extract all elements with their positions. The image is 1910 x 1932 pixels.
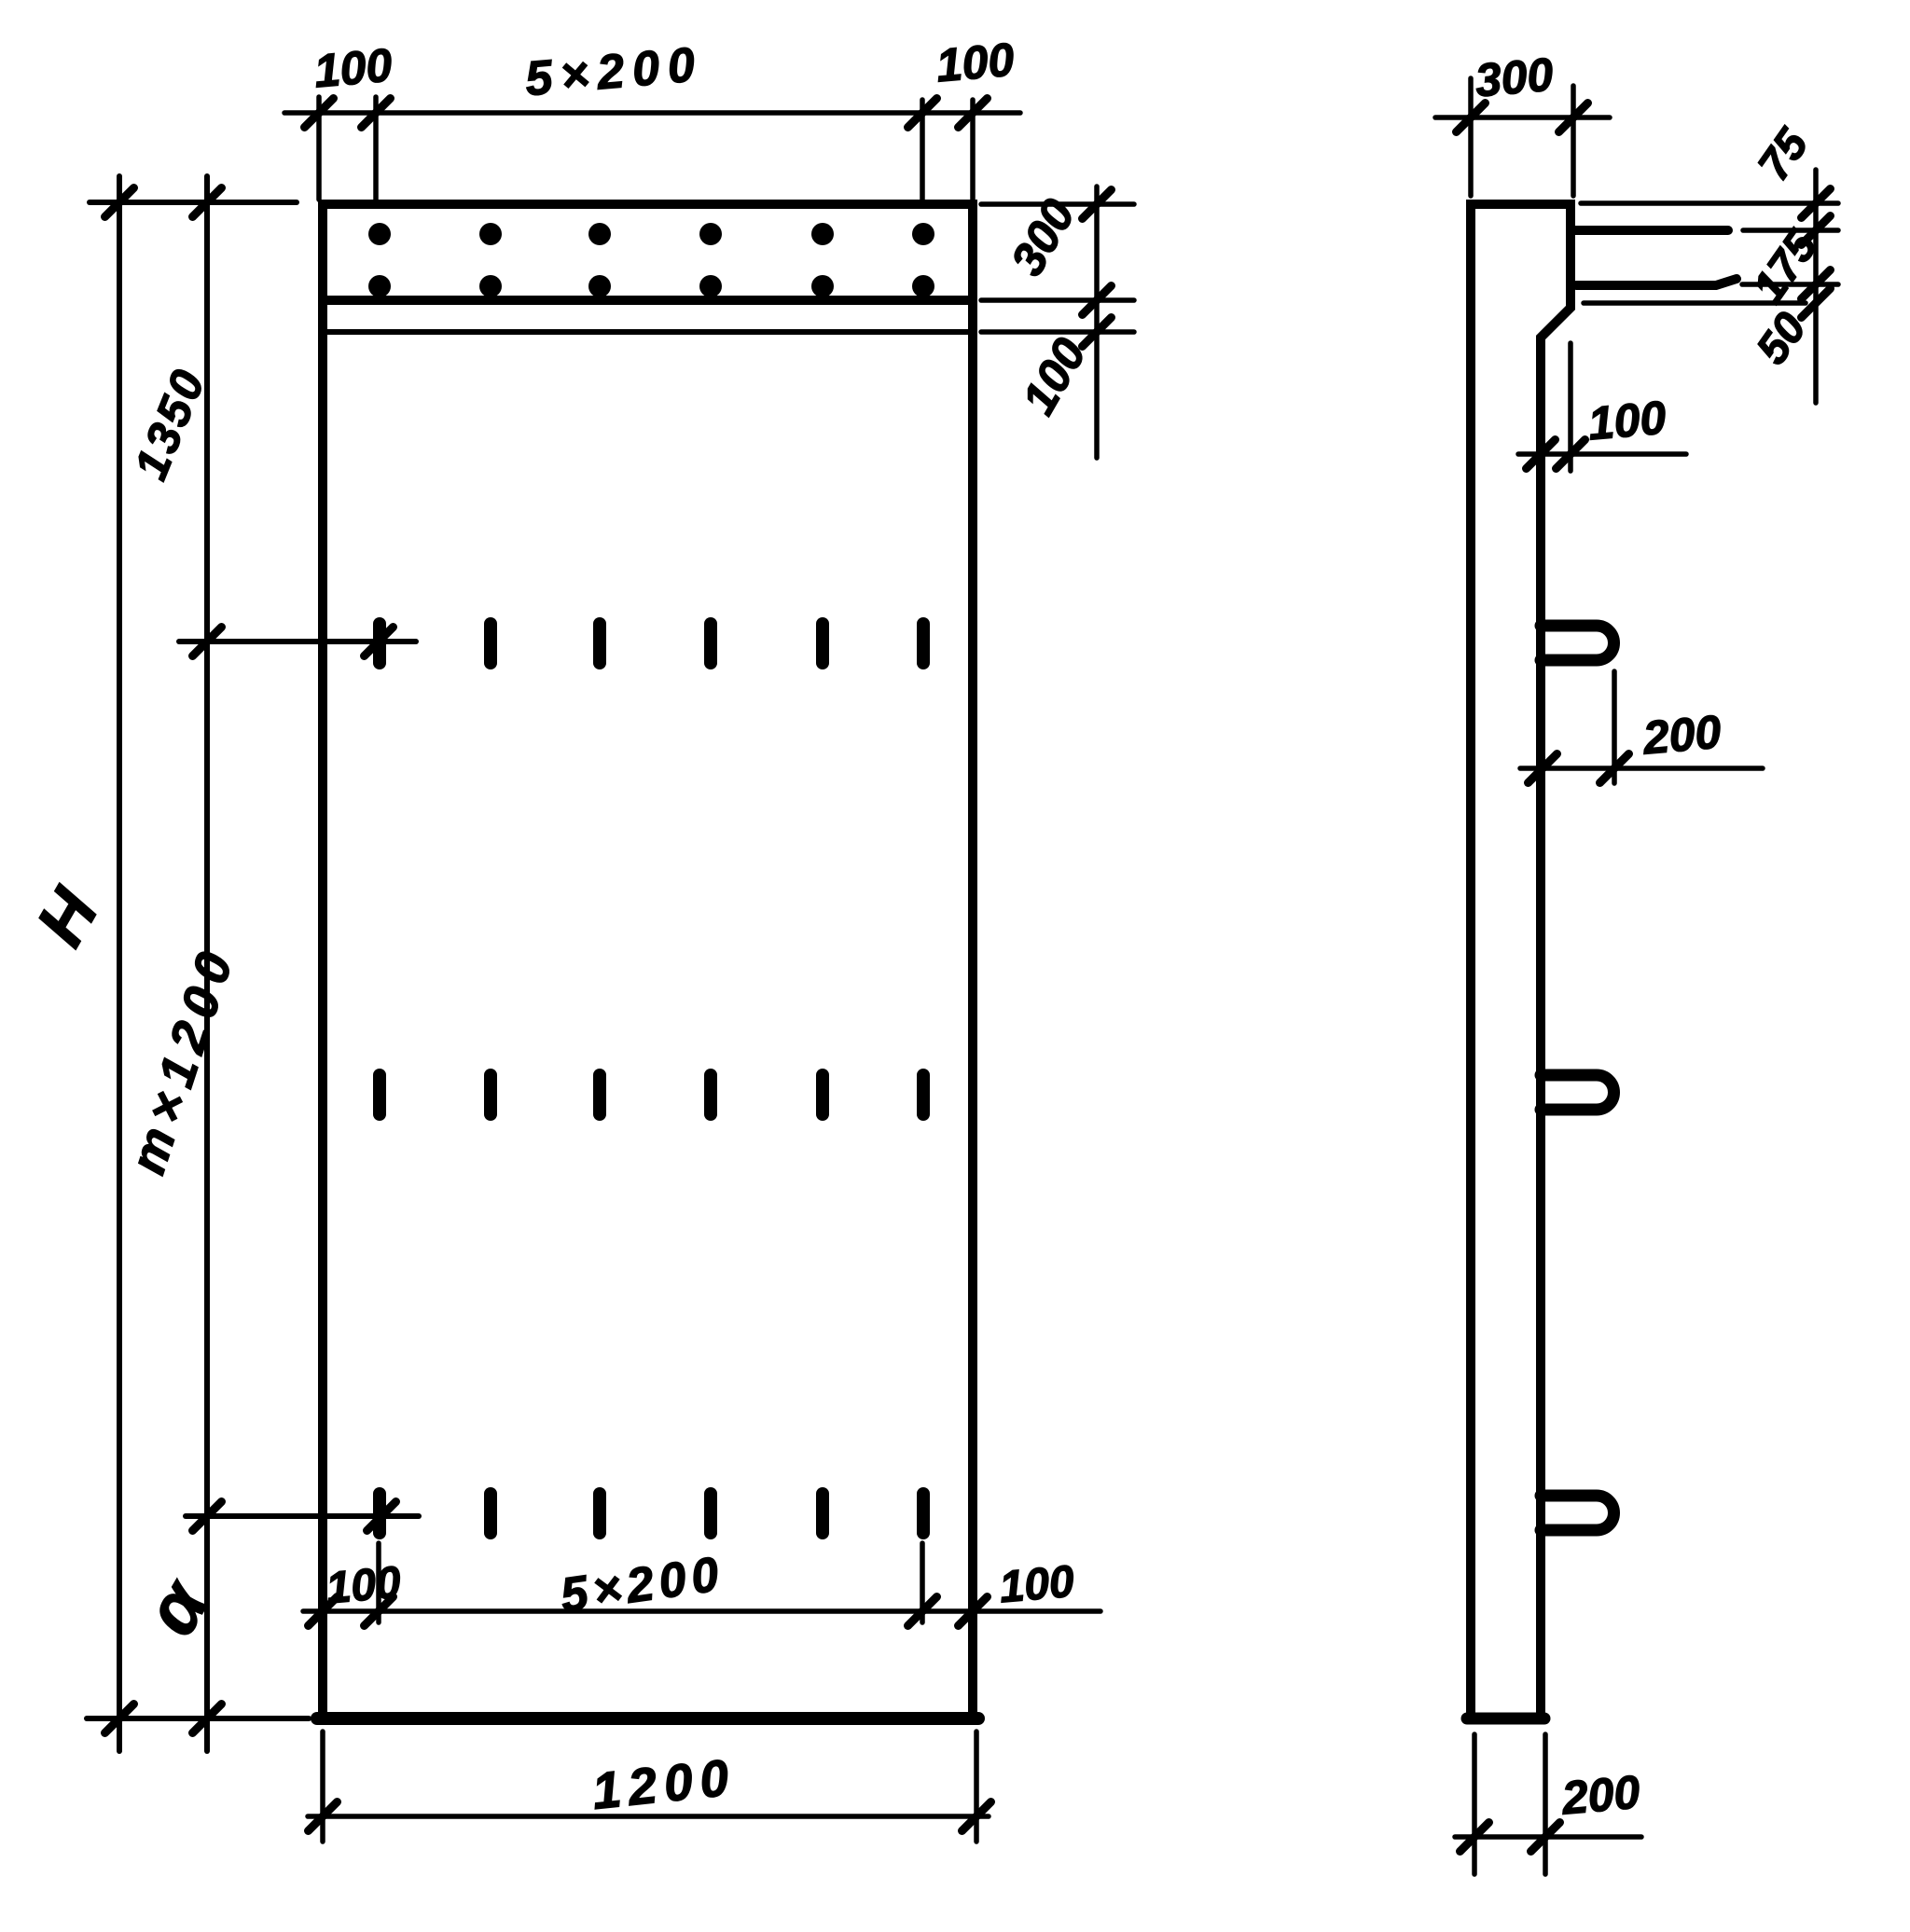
svg-text:200: 200 <box>1640 706 1723 765</box>
svg-text:1200: 1200 <box>589 1747 739 1820</box>
svg-text:m×1200: m×1200 <box>119 938 245 1180</box>
svg-text:100: 100 <box>997 1557 1076 1613</box>
svg-text:100: 100 <box>1586 392 1668 450</box>
svg-text:H: H <box>21 876 114 959</box>
svg-text:5×200: 5×200 <box>523 37 705 106</box>
svg-text:300: 300 <box>1474 48 1556 107</box>
svg-text:1350: 1350 <box>124 361 215 487</box>
svg-text:100: 100 <box>934 34 1017 92</box>
svg-text:200: 200 <box>1559 1766 1642 1825</box>
svg-text:75: 75 <box>1749 119 1819 189</box>
svg-text:100: 100 <box>312 39 394 98</box>
svg-text:α: α <box>129 1564 226 1648</box>
svg-text:100: 100 <box>324 1558 403 1614</box>
